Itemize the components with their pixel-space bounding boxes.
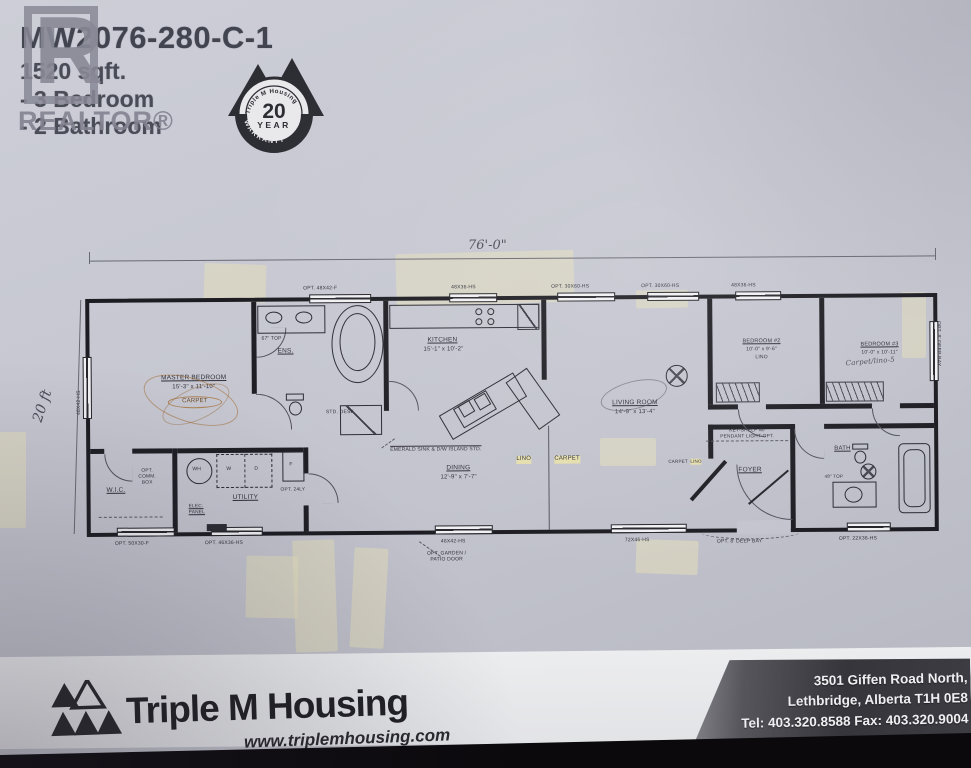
flooring-label-lino: LINO (516, 456, 531, 464)
room-label-wic: W.I.C. (106, 487, 125, 495)
window (647, 292, 699, 301)
overall-width-dimension: 76'-0" (468, 238, 507, 253)
room-label-foyer: FOYER (738, 466, 761, 474)
utility-door-arc (308, 473, 338, 503)
room-dims-dining: 12'-9" x 7'-7" (440, 474, 476, 482)
triple-m-logo-icon (49, 679, 125, 746)
elec-panel-icon (207, 524, 227, 531)
room-dims-bed2: 10'-0" x 9'-6" (718, 346, 806, 353)
closet-bifold-icon (716, 382, 760, 402)
room-label-kitchen: KITCHEN (427, 336, 457, 344)
realtor-r-letter: R (34, 2, 103, 100)
furnace-label: F (289, 462, 292, 468)
toilet-tank-icon (852, 444, 868, 450)
wall-segment-angled (690, 460, 728, 502)
address-line-3: Tel: 403.320.8588 Fax: 403.320.9004 (741, 709, 969, 734)
bedroom3-door-arc (872, 408, 900, 436)
wall-segment (900, 403, 934, 408)
room-floor-bed2: LINO (718, 354, 806, 361)
window (449, 293, 497, 302)
window-label: 46X42-HS (441, 538, 466, 544)
warranty-badge-icon: Triple M Housing 20 YEAR WARRANTY (206, 50, 336, 162)
window (117, 527, 175, 536)
floor-plan-photo: MW2076-280-C-1 1520 sqft. - 3 Bedroom - … (0, 0, 971, 768)
note-comm-box: OPT. COMM. BOX (138, 468, 156, 486)
wic-shelf-line (99, 516, 163, 517)
window-label: 72X46-HS (625, 537, 650, 543)
wall-segment (90, 449, 104, 454)
tape-patch (292, 539, 338, 652)
window-label: OPT. 8' DEEP BAY (717, 538, 762, 545)
window (735, 291, 781, 300)
window (847, 522, 891, 531)
dimension-tick (89, 252, 90, 264)
patio-door (435, 525, 493, 534)
wall-segment (304, 505, 309, 531)
badge-year-word: YEAR (257, 120, 291, 130)
tape-patch (0, 432, 26, 528)
toilet-icon (289, 401, 302, 415)
window-label: OPT. 30X60-HS (641, 283, 679, 290)
extension-line (74, 300, 82, 534)
tub-inner-icon (339, 313, 375, 371)
footer-address-text: 3501 Giffen Road North, Lethbridge, Albe… (740, 668, 968, 733)
realtor-watermark-text: REALTOR® (18, 106, 174, 137)
sink-icon (295, 311, 312, 323)
window-label: 48X36-HS (451, 284, 476, 290)
room-dims-kitchen: 15'-1" x 10'-2" (424, 346, 464, 354)
burner-icon (487, 318, 494, 325)
island-note: EMERALD SINK & D/W ISLAND STD. (390, 446, 481, 453)
room-dims-living: 14'-9" x 13'-4" (590, 409, 680, 417)
flooring-label-foyer-lino: LINO (690, 459, 701, 465)
washer-dryer-divider (244, 454, 246, 488)
wall-segment (819, 298, 825, 404)
window-label: OPT. 48X42-F (303, 285, 337, 291)
elec-panel-label: ELEC. PANEL (189, 504, 205, 516)
tape-patch (635, 539, 698, 575)
window-label: OPT. 8' DEEP BAY (935, 321, 942, 366)
window-label: OPT. 46X36-HS (205, 540, 243, 547)
window (309, 294, 371, 303)
key-shelf-label: KEY-SHELF W/ PENDANT LIGHT-OPT. (706, 428, 788, 442)
wall-segment (172, 448, 178, 532)
burner-icon (487, 308, 494, 315)
kitchen-door-arc (389, 381, 419, 411)
wall-segment (766, 403, 872, 409)
window (557, 292, 615, 301)
bay-dashed-arc (701, 524, 801, 540)
room-label-bed2: BEDROOM #2 (717, 338, 805, 345)
bath-top-label: 48" TOP (824, 474, 843, 480)
sink-icon (845, 487, 863, 503)
dryer-label: D (254, 466, 258, 472)
room-label-ens: ENS. (278, 348, 294, 356)
std-desk-label: STD. DESK (320, 409, 360, 416)
washer-label: W (226, 466, 231, 472)
room-label-utility: UTILITY (233, 494, 259, 502)
wall-segment (132, 448, 172, 453)
burner-icon (475, 318, 482, 325)
ceiling-fan-icon (860, 463, 876, 479)
window (611, 524, 687, 534)
wall-segment (541, 300, 547, 380)
floor-plan-drawing: OPT. 48X42-F 48X36-HS OPT. 30X60-HS OPT.… (85, 293, 939, 537)
window-label: OPT. 50X30-F (115, 541, 149, 547)
footer-brand-name: Triple M Housing (125, 682, 408, 733)
burner-icon (475, 308, 482, 315)
tape-patch (245, 556, 298, 619)
dimension-tick (935, 248, 936, 260)
toilet-icon (854, 451, 866, 464)
window-label: 48X42-HS (76, 390, 82, 415)
bath-door-arc (794, 429, 824, 459)
window-label: OPT. 30X60-HS (551, 283, 589, 290)
patio-door-label: OPT. GARDEN / PATIO DOOR (427, 550, 466, 563)
water-heater-label: WH (192, 466, 201, 472)
room-label-bed3: BEDROOM #3 (833, 341, 925, 349)
tape-patch (349, 547, 388, 649)
flooring-line (548, 426, 550, 530)
flooring-label-foyer-carpet: CARPET (668, 459, 687, 465)
fridge-icon (517, 304, 539, 330)
ceiling-fan-icon (666, 365, 688, 387)
wall-segment (707, 299, 713, 405)
room-label-bath: BATH (834, 446, 850, 454)
window (83, 357, 92, 419)
window-label: 48X36-HS (731, 282, 756, 288)
opt-laundry-label: OPT. 24LY (281, 487, 306, 493)
vanity-top-label: 67" TOP (261, 336, 281, 342)
toilet-tank-icon (286, 393, 304, 400)
closet-bifold-icon (826, 381, 884, 401)
room-dims-bed3: 10'-0" x 10'-11" (834, 349, 926, 356)
window-label: OPT. 22X36-HS (839, 535, 877, 542)
wic-door-arc (104, 454, 132, 482)
sink-icon (265, 312, 282, 324)
room-label-dining: DINING (446, 464, 470, 472)
handwritten-floor-note-bed3: Carpet/lino-5 (845, 356, 895, 369)
wall-segment (708, 404, 738, 409)
handwritten-depth-note: 20 ft (30, 388, 55, 424)
furnace-icon (282, 451, 304, 481)
bathtub-inner-icon (903, 449, 925, 507)
flooring-label-carpet: CARPET (554, 456, 580, 464)
